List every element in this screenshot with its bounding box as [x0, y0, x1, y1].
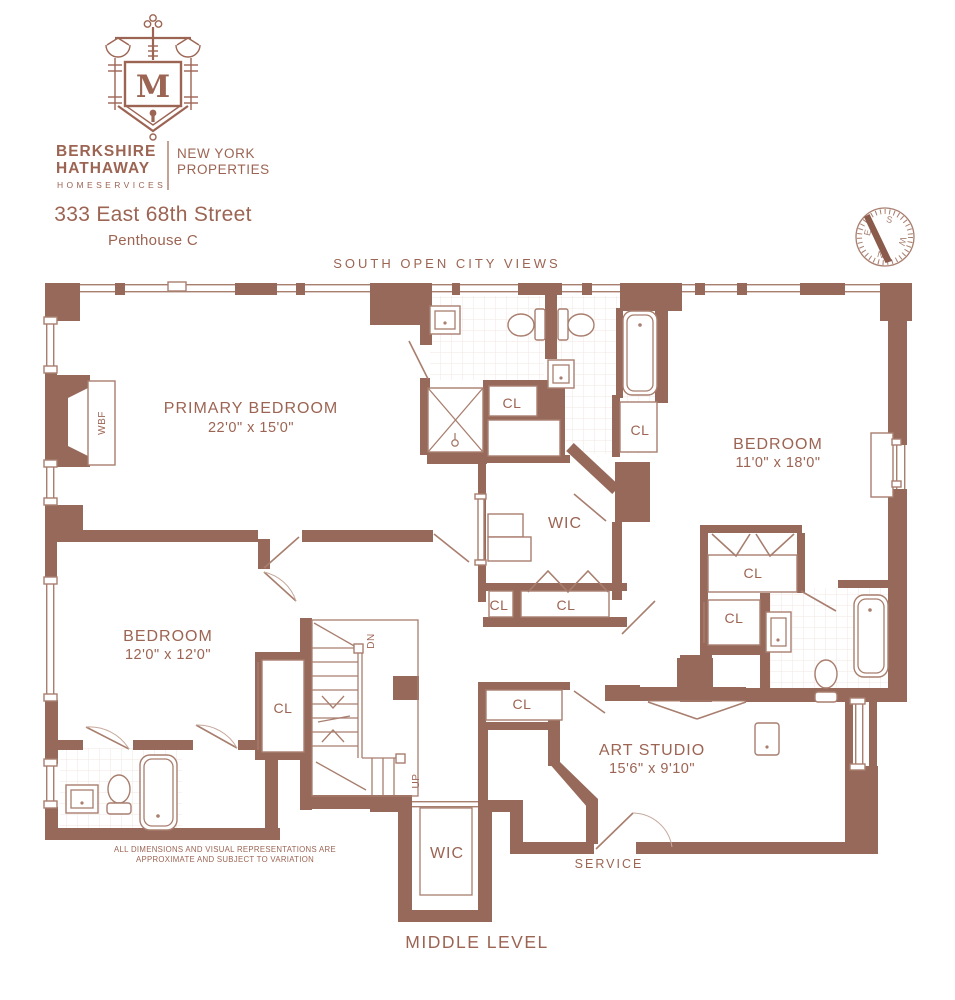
stairs-down-label: DN	[366, 633, 377, 648]
closet-label-right-low: CL	[725, 610, 744, 626]
stair-newel	[396, 754, 405, 763]
bedroom-right-name: BEDROOM	[733, 436, 823, 453]
logo-monogram: M	[136, 69, 170, 105]
wic-center-label: WIC	[548, 515, 582, 532]
address-block: 333 East 68th Street Penthouse C	[54, 203, 251, 249]
brand-name-line1: BERKSHIRE	[56, 143, 156, 160]
art-studio-dims: 15'6" x 9'10"	[609, 761, 695, 777]
bedroom-right-dims: 11'0" x 18'0"	[736, 455, 821, 471]
toilet-primary-bath	[508, 314, 534, 336]
unit-line: Penthouse C	[108, 232, 198, 249]
primary-bedroom-name: PRIMARY BEDROOM	[164, 400, 338, 417]
closet-label-art-studio: CL	[513, 696, 532, 712]
address-line: 333 East 68th Street	[54, 203, 251, 226]
closet-label-hall-wide: CL	[557, 597, 576, 613]
sink-art-studio	[755, 723, 779, 755]
brand-name-line3: HOMESERVICES	[57, 180, 166, 190]
service-label: SERVICE	[575, 857, 644, 871]
toilet-left-bath	[108, 775, 130, 803]
brand-logo: M	[106, 15, 200, 140]
closet-label-hall-small: CL	[490, 597, 509, 613]
stair-newel	[354, 644, 363, 653]
brand-region-line1: NEW YORK	[177, 146, 255, 161]
window-seat	[871, 433, 893, 497]
art-studio-name: ART STUDIO	[599, 742, 705, 759]
compass-rose: S W N E	[856, 208, 914, 266]
bedroom-left-dims: 12'0" x 12'0"	[125, 647, 211, 663]
disclaimer-line2: APPROXIMATE AND SUBJECT TO VARIATION	[136, 855, 314, 864]
compass-south: S	[885, 214, 893, 225]
floor-plan-canvas: M BERKSHIRE HATHAWAY HOMESERVICES NEW YO…	[0, 0, 955, 1000]
closet-label-second-bath: CL	[631, 422, 650, 438]
brand-lockup: BERKSHIRE HATHAWAY HOMESERVICES NEW YORK…	[56, 141, 270, 190]
bathtub-right-bath	[854, 595, 888, 677]
toilet-second-bath	[568, 314, 594, 336]
staircase[interactable]: DN UP	[312, 620, 422, 796]
sink-second-bath	[548, 360, 574, 388]
compass-west: W	[896, 236, 908, 247]
fireplace-label: WBF	[97, 411, 108, 435]
bedroom-left-name: BEDROOM	[123, 628, 213, 645]
toilet-right-bath	[815, 660, 837, 688]
wic-bottom-label: WIC	[430, 845, 464, 862]
closet-label-left-bedroom: CL	[274, 700, 293, 716]
brand-region-line2: PROPERTIES	[177, 162, 270, 177]
floorplan-page: M BERKSHIRE HATHAWAY HOMESERVICES NEW YO…	[0, 0, 955, 1000]
stairs-up-label: UP	[411, 774, 422, 789]
disclaimer-line1: ALL DIMENSIONS AND VISUAL REPRESENTATION…	[114, 845, 336, 854]
primary-bedroom-dims: 22'0" x 15'0"	[208, 420, 294, 436]
level-title: MIDDLE LEVEL	[405, 932, 548, 952]
closet-label-right-top: CL	[744, 565, 763, 581]
brand-name-line2: HATHAWAY	[56, 160, 150, 177]
bathtub-left-bath	[140, 755, 177, 830]
orientation-note: SOUTH OPEN CITY VIEWS	[333, 256, 560, 271]
closet-label-primary-bath: CL	[503, 395, 522, 411]
